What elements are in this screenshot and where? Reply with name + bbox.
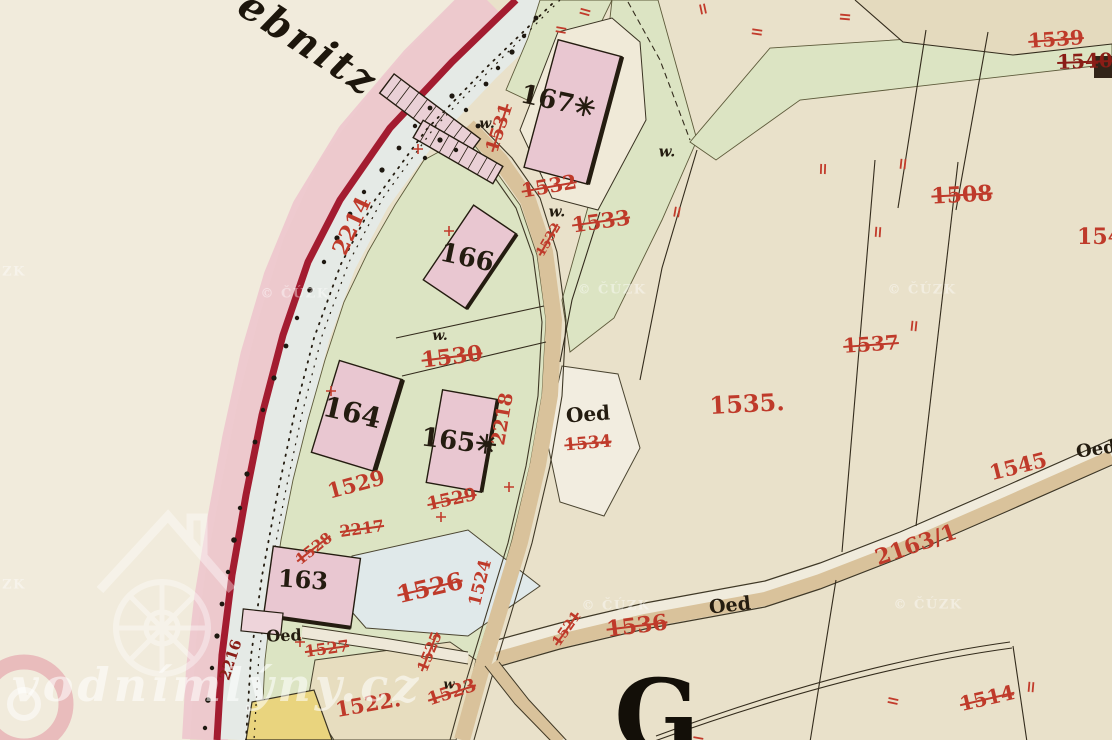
building-fragment-edge xyxy=(1094,56,1112,78)
building-163-annex xyxy=(241,609,283,635)
cadastral-map-canvas[interactable]: 2214153115321532153315302218152915291534… xyxy=(0,0,1112,740)
map-artwork xyxy=(0,0,1112,740)
